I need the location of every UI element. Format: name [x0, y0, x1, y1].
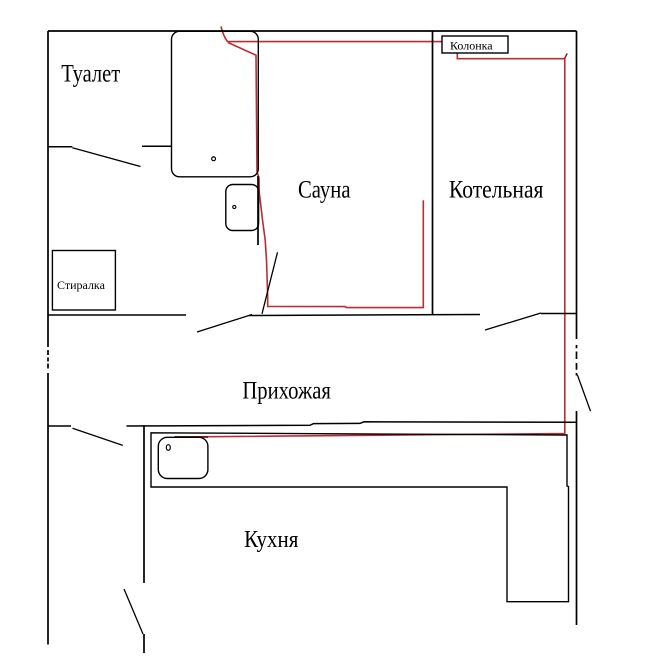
svg-text:Стиралка: Стиралка: [57, 278, 106, 292]
svg-text:Котельная: Котельная: [449, 176, 544, 203]
svg-text:Прихожая: Прихожая: [242, 378, 331, 405]
svg-text:Кухня: Кухня: [244, 527, 298, 553]
svg-text:Колонка: Колонка: [450, 39, 493, 53]
svg-text:Туалет: Туалет: [61, 61, 120, 88]
svg-text:Сауна: Сауна: [298, 176, 351, 203]
